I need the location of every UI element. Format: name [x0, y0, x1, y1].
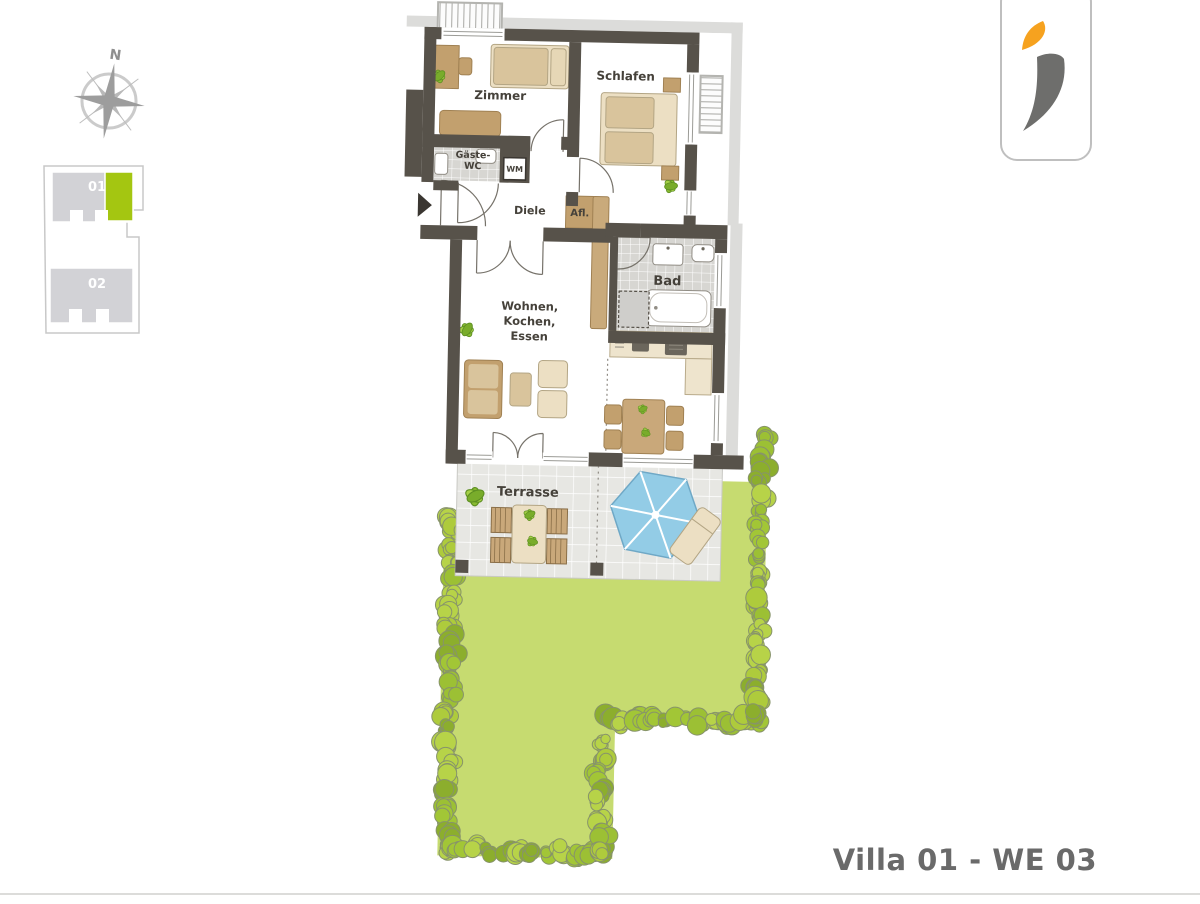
terrace: Terrasse [455, 462, 723, 582]
room-label-gaeste-wc-1: Gäste- [455, 150, 490, 162]
site-label-02: 02 [88, 277, 106, 292]
zimmer-sofa [439, 110, 501, 136]
site-label-01: 01 [88, 180, 106, 195]
page-title: Villa 01 - WE 03 [833, 843, 1097, 877]
light-shaft [438, 2, 503, 29]
room-label-wohnen-2: Kochen, [503, 314, 555, 329]
compass-icon: N [68, 43, 152, 144]
site-plan: 01 02 [44, 166, 143, 333]
bottom-border [0, 893, 1200, 895]
label-wm: WM [506, 165, 523, 174]
room-label-terrasse: Terrasse [497, 485, 559, 501]
room-label-bad: Bad [653, 274, 681, 290]
room-label-zimmer: Zimmer [474, 88, 526, 103]
room-label-diele: Diele [514, 204, 546, 218]
single-bed [490, 44, 569, 89]
hall-wardrobe [590, 196, 609, 328]
compass-north-label: N [108, 47, 122, 64]
room-label-schlafen: Schlafen [596, 69, 655, 84]
room-label-afl: Afl. [570, 208, 589, 219]
room-label-wohnen-3: Essen [510, 329, 548, 344]
room-label-wohnen-1: Wohnen, [501, 299, 558, 314]
room-label-gaeste-wc-2: WC [464, 161, 482, 172]
floor-plan: Terrasse [389, 2, 788, 871]
wc-sink [435, 153, 448, 174]
window-shutter-box [699, 76, 722, 133]
site-unit-highlight [105, 172, 133, 221]
floorplan-canvas: Terrasse [0, 0, 1200, 900]
logo [1001, 0, 1091, 160]
